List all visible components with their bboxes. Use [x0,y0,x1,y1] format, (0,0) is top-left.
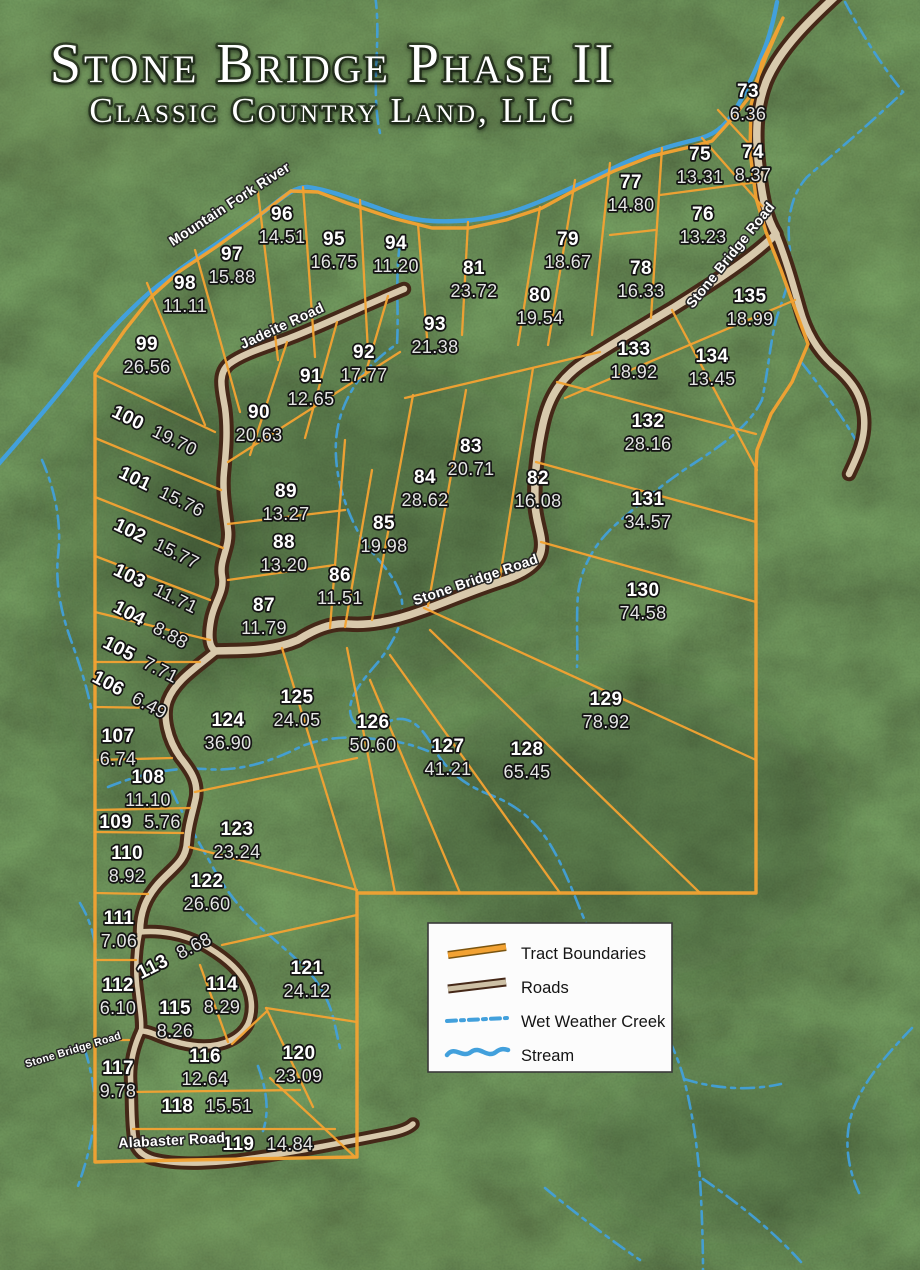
tract-number: 83 [460,436,482,457]
tract-acreage: 11.11 [163,296,207,316]
tract-number: 88 [273,532,295,553]
plat-map: 736.36748.377513.317613.237714.807816.33… [0,0,920,1270]
tract-number: 116 [189,1046,221,1067]
tract-acreage: 15.51 [205,1096,252,1116]
tract-number: 82 [527,468,549,489]
legend-item-label: Tract Boundaries [521,945,646,963]
tract-acreage: 16.75 [310,252,357,272]
tract-boundary-line [95,893,148,894]
tract-acreage: 23.24 [213,842,260,862]
tract-number: 120 [283,1043,316,1064]
tract-number: 95 [323,229,345,250]
tract-acreage: 6.10 [100,998,137,1018]
tract-acreage: 16.33 [617,281,664,301]
tract-number: 99 [136,334,158,355]
tract-number: 118 [162,1096,194,1117]
tract-acreage: 24.05 [273,710,320,730]
tract-acreage: 11.79 [241,618,287,638]
tract-acreage: 7.06 [101,931,138,951]
tract-acreage: 28.16 [624,434,671,454]
tract-number: 109 [99,812,132,833]
legend-item-label: Roads [521,979,569,997]
tract-acreage: 65.45 [503,762,550,782]
tract-acreage: 26.56 [123,357,170,377]
tract-number: 119 [223,1134,255,1155]
tract-acreage: 50.60 [349,735,396,755]
tract-number: 81 [463,258,485,279]
tract-acreage: 13.27 [262,504,309,524]
tract-acreage: 6.36 [730,104,767,124]
tract-number: 73 [737,81,759,102]
tract-number: 91 [300,366,322,387]
tract-number: 132 [632,411,665,432]
tract-acreage: 78.92 [582,712,629,732]
tract-number: 129 [590,689,623,710]
tract-acreage: 20.63 [235,425,282,445]
tract-number: 114 [206,974,238,995]
tract-number: 107 [102,726,135,747]
tract-number: 112 [102,975,134,996]
tract-acreage: 24.12 [283,981,330,1001]
map-subtitle: Classic Country Land, LLC [89,91,576,130]
tract-number: 128 [511,739,544,760]
tract-number: 110 [111,843,143,864]
tract-number: 117 [102,1058,134,1079]
tract-number: 87 [253,595,275,616]
tract-acreage: 14.51 [258,227,305,247]
legend-item-label: Wet Weather Creek [521,1013,666,1031]
satellite-terrain [0,0,920,1270]
tract-number: 89 [275,481,297,502]
map-title: Stone Bridge Phase II [50,33,616,95]
tract-number: 122 [191,871,224,892]
tract-acreage: 15.88 [208,267,255,287]
tract-acreage: 11.20 [373,256,419,276]
tract-acreage: 19.54 [516,308,563,328]
tract-number: 98 [174,273,196,294]
tract-number: 79 [557,229,579,250]
tract-acreage: 41.21 [424,759,471,779]
map-title-block: Stone Bridge Phase II Classic Country La… [50,33,616,130]
tract-number: 97 [221,244,243,265]
tract-number: 96 [271,204,293,225]
tract-number: 108 [132,767,165,788]
tract-acreage: 5.76 [144,812,181,832]
tract-number: 94 [385,233,407,254]
plat-map-screenshot: 736.36748.377513.317613.237714.807816.33… [0,0,920,1270]
tract-number: 126 [357,712,390,733]
tract-acreage: 14.80 [607,195,654,215]
tract-number: 92 [353,342,375,363]
tract-number: 131 [632,489,665,510]
tract-number: 86 [329,565,351,586]
tract-label-118: 11815.51 [162,1096,253,1117]
tract-label-119: 11914.84 [223,1134,314,1155]
tract-acreage: 11.51 [317,588,363,608]
tract-acreage: 26.60 [183,894,230,914]
tract-acreage: 13.31 [676,167,723,187]
tract-acreage: 18.67 [544,252,591,272]
tract-number-acreage: 11914.84 [223,1134,314,1155]
tract-number: 130 [627,580,660,601]
tract-number: 134 [696,346,729,367]
tract-acreage: 36.90 [204,733,251,753]
tract-acreage: 12.65 [287,389,334,409]
legend: Tract BoundariesRoadsWet Weather CreekSt… [428,923,672,1072]
tract-number: 124 [212,710,245,731]
terrain-dark-patch [590,1055,910,1245]
legend-item-label: Stream [521,1047,574,1065]
tract-number-acreage: 11815.51 [162,1096,253,1117]
tract-acreage: 14.84 [266,1134,313,1154]
tract-number: 123 [221,819,254,840]
tract-number: 135 [734,286,767,307]
tract-acreage: 16.08 [514,491,561,511]
tract-acreage: 8.26 [157,1021,194,1041]
tract-number: 75 [689,144,711,165]
tract-number: 74 [742,142,764,163]
tract-acreage: 12.64 [181,1069,228,1089]
tract-number: 84 [414,467,436,488]
tract-acreage: 6.74 [100,749,137,769]
tract-acreage: 11.10 [125,790,171,810]
tract-acreage: 18.92 [610,362,657,382]
tract-acreage: 74.58 [619,603,666,623]
tract-number: 121 [291,958,324,979]
tract-acreage: 13.20 [260,555,307,575]
tract-number: 80 [529,285,551,306]
tract-acreage: 8.29 [204,997,241,1017]
tract-number: 133 [618,339,651,360]
tract-acreage: 28.62 [401,490,448,510]
tract-number: 78 [630,258,652,279]
tract-number: 111 [104,908,135,929]
tract-acreage: 8.37 [735,165,772,185]
tract-acreage: 9.78 [100,1081,137,1101]
tract-number: 77 [620,172,642,193]
tract-acreage: 21.38 [411,337,458,357]
tract-number: 76 [692,204,714,225]
tract-number: 85 [373,513,395,534]
tract-acreage: 8.92 [109,866,146,886]
tract-acreage: 19.98 [360,536,407,556]
tract-acreage: 23.72 [450,281,497,301]
tract-number: 127 [432,736,465,757]
tract-number: 93 [424,314,446,335]
tract-acreage: 18.99 [726,309,773,329]
tract-acreage: 34.57 [624,512,671,532]
tract-acreage: 17.77 [340,365,387,385]
tract-acreage: 23.09 [275,1066,322,1086]
tract-number: 90 [248,402,270,423]
tract-acreage: 20.71 [447,459,494,479]
tract-number: 115 [159,998,191,1019]
tract-number: 125 [281,687,314,708]
tract-acreage: 13.45 [688,369,735,389]
tract-acreage: 13.23 [679,227,726,247]
